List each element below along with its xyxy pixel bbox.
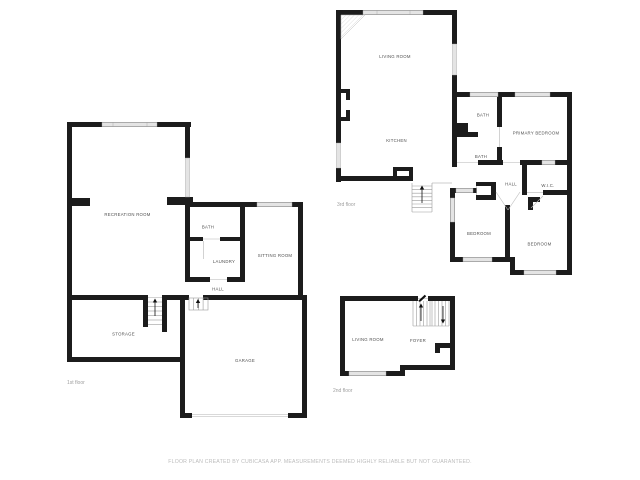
second-floor-plan: LIVING ROOM FOYER 2nd floor	[333, 296, 455, 395]
room-label-bath-1st: BATH	[202, 225, 214, 230]
entry-door	[418, 296, 428, 302]
room-label-bath-upper: BATH	[477, 113, 489, 118]
first-floor-plan: RECREATION ROOM BATH LAUNDRY SITTING ROO…	[67, 122, 307, 418]
door-swing-arc	[508, 192, 520, 210]
second-floor-stairs	[413, 301, 449, 326]
floor-plan-page: RECREATION ROOM BATH LAUNDRY SITTING ROO…	[0, 0, 640, 480]
second-floor-walls	[340, 296, 455, 376]
stairs-up-arrow-icon	[153, 299, 157, 303]
door-swing-arc	[496, 192, 508, 210]
room-label-wic: W.I.C.	[541, 183, 554, 188]
room-label-garage: GARAGE	[235, 358, 255, 363]
room-label-bath-lower: BATH	[475, 154, 487, 159]
room-label-recreation-room: RECREATION ROOM	[104, 212, 150, 217]
room-label-kitchen: KITCHEN	[386, 138, 407, 143]
second-floor-windows	[349, 371, 386, 375]
third-floor-plan: LIVING ROOM KITCHEN BATH PRIMARY BEDROOM…	[336, 10, 572, 275]
room-label-bedroom-right: BEDROOM	[528, 242, 552, 247]
room-label-bedroom-left: BEDROOM	[467, 231, 491, 236]
room-label-sitting-room: SITTING ROOM	[258, 253, 293, 258]
third-floor-windows	[336, 10, 556, 274]
room-label-living-room-2nd: LIVING ROOM	[352, 337, 384, 342]
first-floor-windows	[102, 122, 292, 206]
room-label-hall-3rd: HALL	[505, 182, 517, 187]
room-label-laundry: LAUNDRY	[213, 259, 235, 264]
steps-arrow-icon	[196, 299, 200, 303]
room-label-hall-1st: HALL	[212, 287, 224, 292]
first-floor-stairs	[148, 299, 162, 325]
fireplace-hatch	[341, 15, 365, 39]
floor-label-2nd: 2nd floor	[333, 388, 353, 394]
garage-door	[192, 414, 288, 416]
stairs-up-arrow-icon	[419, 304, 423, 308]
third-floor-stairs	[412, 183, 452, 212]
floor-label-3rd: 3rd floor	[337, 202, 356, 208]
room-label-primary-bedroom: PRIMARY BEDROOM	[513, 131, 560, 136]
stairs-down-arrow-icon	[441, 320, 445, 324]
room-label-living-room-3rd: LIVING ROOM	[379, 54, 411, 59]
disclaimer-text: FLOOR PLAN CREATED BY CUBICASA APP. MEAS…	[168, 459, 471, 465]
floor-label-1st: 1st floor	[67, 380, 85, 386]
room-label-storage: STORAGE	[112, 332, 135, 337]
floor-plan-canvas: RECREATION ROOM BATH LAUNDRY SITTING ROO…	[0, 0, 640, 480]
room-label-foyer: FOYER	[410, 338, 426, 343]
